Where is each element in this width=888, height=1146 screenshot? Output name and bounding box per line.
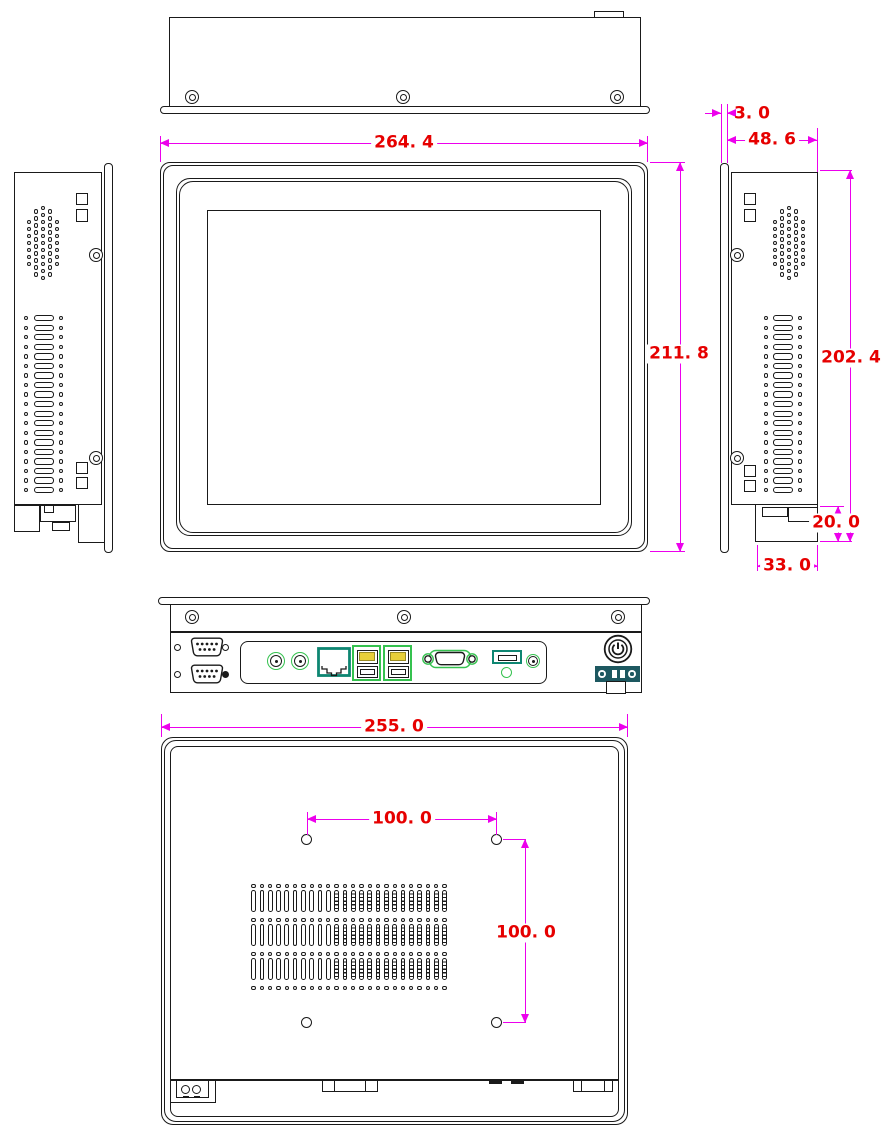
dim-label: 100. 0 [493, 924, 559, 943]
dim-vesa-vertical: 100. 0 [0, 0, 888, 1146]
drawing-canvas: 264. 4 211. 8 3. 0 48. 6 202. 4 [0, 0, 888, 1146]
